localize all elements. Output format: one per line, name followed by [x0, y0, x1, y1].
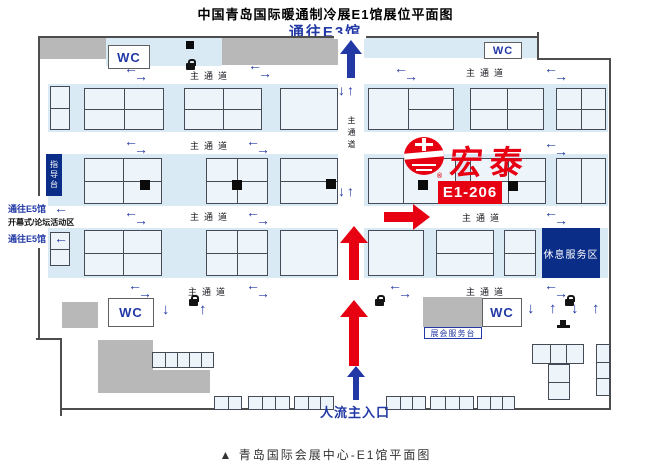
- main-entrance-label: 人流主入口: [320, 402, 390, 421]
- wall-block: [423, 297, 482, 327]
- arrow-up-icon: ↑: [347, 82, 356, 98]
- arrow-down-icon: ↓: [162, 302, 170, 317]
- booth-group: [470, 88, 544, 130]
- arrow-right-icon: →: [554, 216, 568, 224]
- booth-group: [430, 396, 474, 410]
- booth-group: [368, 230, 424, 276]
- to-e3-arrow: [340, 40, 362, 78]
- aisle-direction-arrows: ←→: [130, 281, 152, 297]
- main-aisle-label: 主通道: [466, 285, 508, 298]
- booth-group: [206, 230, 268, 276]
- route-arrow-up-1: [340, 226, 368, 280]
- lock-icon: [186, 63, 195, 70]
- arrow-right-icon: →: [134, 216, 148, 224]
- arrow-right-icon: →: [256, 289, 270, 297]
- wc-label: WC: [493, 45, 513, 57]
- arrow-right-icon: →: [398, 289, 412, 297]
- arrow-down-icon: ↓: [338, 82, 347, 98]
- aisle-direction-arrows: ←→: [248, 281, 270, 297]
- wc-label: WC: [119, 305, 143, 320]
- wall-block: [98, 340, 153, 393]
- arrow-up-icon: ↑: [199, 302, 207, 317]
- booth-group: [84, 158, 162, 204]
- booth-group: [84, 230, 162, 276]
- exhibitor-name: 宏泰: [448, 136, 532, 184]
- to-e5-label: 通往E5馆: [8, 202, 46, 215]
- main-aisle-label: 主通道: [190, 210, 232, 223]
- wc-room-top-right: WC: [484, 42, 522, 59]
- rest-service-area: 休息服务区: [542, 228, 600, 278]
- wc-room-bottom-right: WC: [482, 298, 522, 327]
- arrow-down-icon: ↓: [338, 183, 347, 199]
- aisle-direction-arrows: ←→: [396, 64, 418, 80]
- aisle-direction-arrows: ←→: [126, 137, 148, 153]
- arrow-right-icon: →: [554, 289, 568, 297]
- main-aisle-label: 主通道: [190, 69, 232, 82]
- booth-number-badge: E1-206: [438, 181, 502, 204]
- arrow-right-icon: →: [256, 145, 270, 153]
- caption: ▲ 青岛国际会展中心-E1馆平面图: [0, 446, 651, 463]
- door-icon: [557, 325, 570, 328]
- pillar-marker: [232, 180, 242, 190]
- arrow-right-icon: →: [554, 72, 568, 80]
- arrow-right-icon: →: [258, 69, 272, 77]
- arrow-right-icon: →: [554, 147, 568, 155]
- lock-icon: [189, 299, 198, 306]
- guide-desk-label: 指导台: [49, 160, 60, 190]
- main-aisle-label: 主通道: [462, 211, 504, 224]
- hall-top-right-notch: [537, 32, 611, 60]
- rest-service-label: 休息服务区: [544, 246, 599, 261]
- arrow-down-icon: ↓: [527, 301, 535, 316]
- wall-block: [62, 302, 98, 328]
- booth-group: [280, 230, 338, 276]
- aisle-vertical-arrows: ↓↑: [338, 82, 356, 98]
- registered-mark: ®: [437, 173, 442, 180]
- booth-group: [386, 396, 426, 410]
- booth-group: [556, 158, 606, 204]
- aisle-direction-arrows: ←→: [248, 208, 270, 224]
- aisle-direction-arrows: ←→: [546, 208, 568, 224]
- to-e5-upper: 通往E5馆 ←: [8, 200, 68, 216]
- pillar-marker: [140, 180, 150, 190]
- arrow-up-icon: ↑: [592, 301, 600, 316]
- aisle-direction-arrows: ←→: [250, 61, 272, 77]
- arrow-up-icon: ↑: [549, 301, 557, 316]
- wall-block: [40, 38, 106, 59]
- booth-group: [556, 88, 606, 130]
- wc-label: WC: [490, 305, 514, 320]
- floor-plan-page: 中国青岛国际暖通制冷展E1馆展位平面图 通往E3馆: [0, 0, 651, 470]
- arrow-right-icon: →: [404, 72, 418, 80]
- arrow-right-icon: →: [138, 289, 152, 297]
- aisle-direction-arrows: ←→: [126, 208, 148, 224]
- booth-group: [436, 230, 494, 276]
- guide-desk-box: 指导台: [46, 154, 62, 196]
- e3-passage-opening: [334, 34, 366, 39]
- lock-icon: [375, 299, 384, 306]
- hall-bottom-left-notch: [36, 338, 62, 416]
- arrow-left-icon: ←: [54, 200, 68, 216]
- forum-area-label: 开幕式/论坛活动区: [8, 217, 74, 228]
- aisle-direction-arrows: ←→: [546, 139, 568, 155]
- booth-group: [368, 88, 454, 130]
- booth-group: [84, 88, 164, 130]
- aisle-vertical-arrows: ↓↑: [338, 183, 356, 199]
- booth-group: [184, 88, 262, 130]
- exhibitor-logo-icon: [404, 137, 444, 175]
- main-aisle-label: 主通道: [190, 139, 232, 152]
- expo-service-desk-label: 展会服务台: [431, 328, 476, 339]
- main-aisle-label: 主通道: [466, 66, 508, 79]
- wc-room-bottom-left: WC: [108, 298, 154, 327]
- main-aisle-label-vertical: 主通道: [346, 116, 357, 164]
- booth-group: [548, 364, 570, 400]
- booth-group: [477, 396, 515, 410]
- route-arrow-right: [384, 204, 430, 230]
- booth-group: [280, 88, 338, 130]
- pillar-marker: [418, 180, 428, 190]
- arrow-left-icon: ←: [54, 230, 68, 246]
- booth-group: [504, 230, 536, 276]
- booth-group: [50, 86, 70, 130]
- to-e5-label: 通往E5馆: [8, 232, 46, 245]
- entrance-arrow: [347, 366, 365, 400]
- aisle-direction-arrows: ←→: [546, 64, 568, 80]
- arrow-right-icon: →: [134, 72, 148, 80]
- to-e5-lower: 通往E5馆 ←: [8, 230, 68, 246]
- lock-icon: [565, 299, 574, 306]
- booth-group: [248, 396, 290, 410]
- aisle-direction-arrows: ←→: [546, 281, 568, 297]
- aisle-direction-arrows: ←→: [248, 137, 270, 153]
- aisle-direction-arrows: ←→: [126, 64, 148, 80]
- booth-group: [532, 344, 584, 364]
- route-arrow-up-2: [340, 300, 368, 366]
- pillar-marker: [326, 179, 336, 189]
- booth-group: [152, 352, 214, 368]
- aisle-direction-arrows: ←→: [390, 281, 412, 297]
- wall-block: [153, 370, 210, 393]
- booth-group: [596, 344, 610, 396]
- arrow-up-icon: ↑: [347, 183, 356, 199]
- expo-service-desk: 展会服务台: [424, 327, 482, 339]
- wall-block: [222, 38, 338, 65]
- pillar-marker: [186, 41, 194, 49]
- booth-group: [214, 396, 242, 410]
- arrow-right-icon: →: [134, 145, 148, 153]
- arrow-right-icon: →: [256, 216, 270, 224]
